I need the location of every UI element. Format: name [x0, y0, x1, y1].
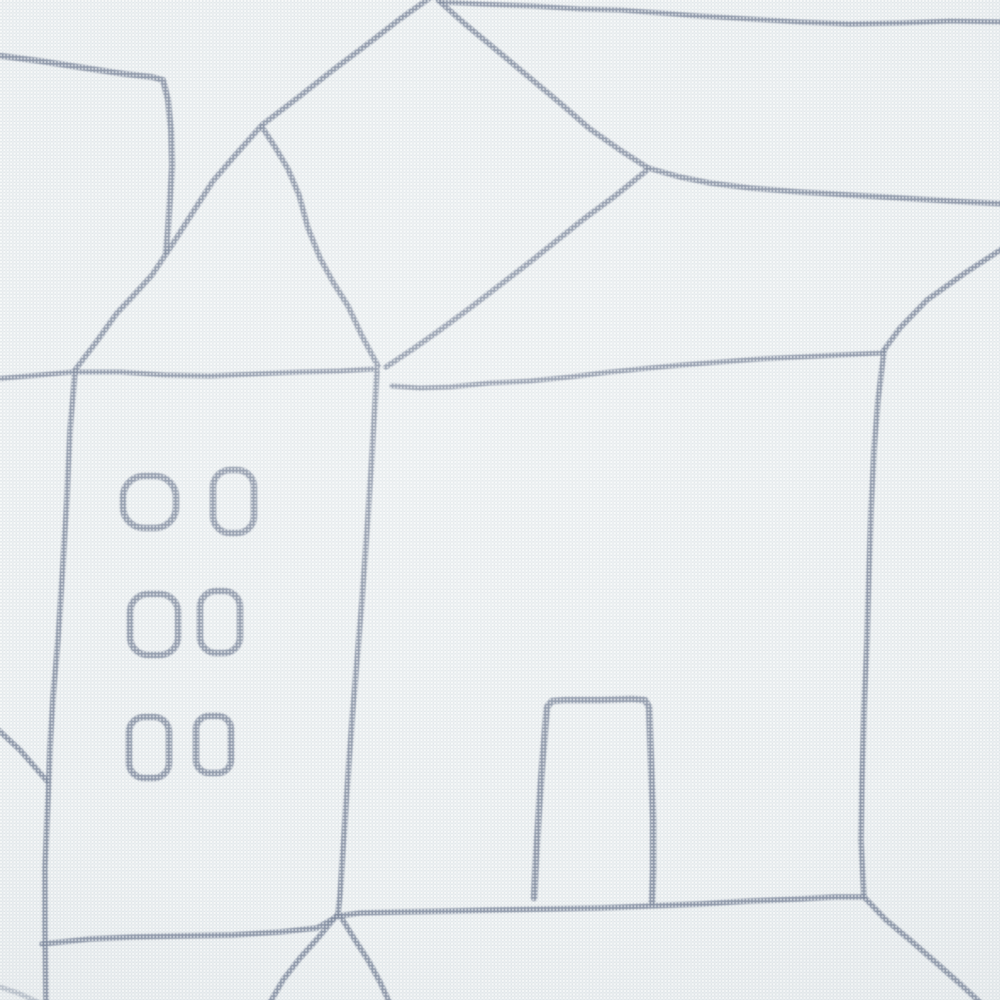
bottom-house-right-roof-slope: [341, 917, 391, 1000]
left-wall-line: [45, 372, 75, 1000]
door-outline: [534, 699, 653, 902]
big-roof-top-ridge: [648, 168, 1000, 204]
bottom-left-corner-line: [0, 985, 42, 1000]
center-wall-line: [338, 371, 377, 914]
window-row3-right: [196, 716, 231, 773]
window-row2-right: [200, 591, 240, 653]
window-row1-left: [123, 476, 176, 528]
left-house-eave-line: [0, 369, 374, 379]
house-line-art: [0, 0, 1000, 1000]
right-wall-line: [861, 351, 884, 897]
big-roof-front-eave: [392, 353, 882, 388]
window-row2-left: [130, 594, 178, 655]
bottom-right-roof-diagonal: [864, 897, 984, 1000]
big-roof-left-edge: [386, 171, 646, 367]
big-roof-left-ridge: [438, 0, 648, 168]
left-house-ridge-and-left-roof-slope: [75, 0, 434, 370]
big-roof-right-edge: [884, 247, 1000, 350]
line-art-group: [0, 0, 1000, 1000]
left-chimney-outline: [0, 55, 172, 252]
ground-line: [42, 897, 862, 944]
fabric-photo: [0, 0, 1000, 1000]
top-horizon-line: [440, 2, 1000, 24]
window-row1-right: [213, 470, 254, 533]
window-row3-left: [129, 717, 169, 778]
left-edge-roof-diagonal: [0, 726, 47, 781]
left-house-right-roof-slope: [262, 127, 378, 366]
